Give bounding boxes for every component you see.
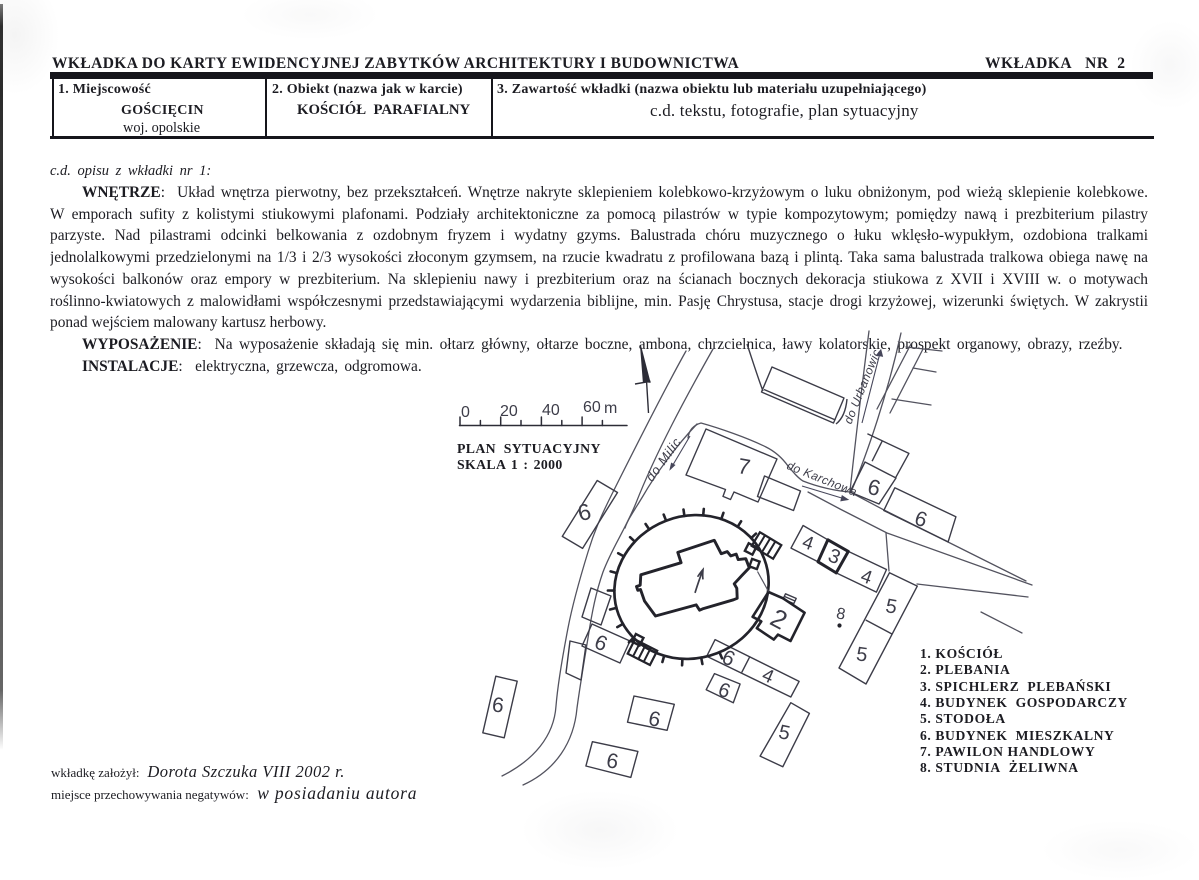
svg-text:8: 8 [835, 605, 847, 623]
svg-text:4: 4 [759, 665, 778, 689]
svg-text:6: 6 [912, 507, 930, 532]
svg-text:6: 6 [491, 693, 506, 717]
svg-text:5: 5 [884, 595, 899, 619]
svg-text:0: 0 [461, 404, 470, 421]
svg-text:6: 6 [865, 474, 883, 501]
svg-text:5: 5 [855, 643, 869, 666]
svg-text:7: 7 [736, 453, 752, 480]
svg-text:4: 4 [858, 566, 876, 589]
svg-text:60: 60 [583, 399, 601, 416]
svg-text:20: 20 [500, 403, 518, 420]
svg-text:6: 6 [591, 631, 610, 657]
svg-text:40: 40 [542, 402, 560, 419]
svg-text:6: 6 [718, 646, 738, 672]
svg-text:6: 6 [605, 749, 621, 774]
svg-text:2: 2 [766, 602, 793, 635]
svg-text:4: 4 [799, 532, 817, 555]
svg-text:do Urbanowic: do Urbanowic [841, 347, 884, 426]
svg-text:m: m [604, 400, 617, 417]
svg-text:6: 6 [575, 498, 594, 526]
svg-text:6: 6 [715, 679, 733, 703]
svg-text:do Karchowa: do Karchowa [785, 458, 859, 499]
